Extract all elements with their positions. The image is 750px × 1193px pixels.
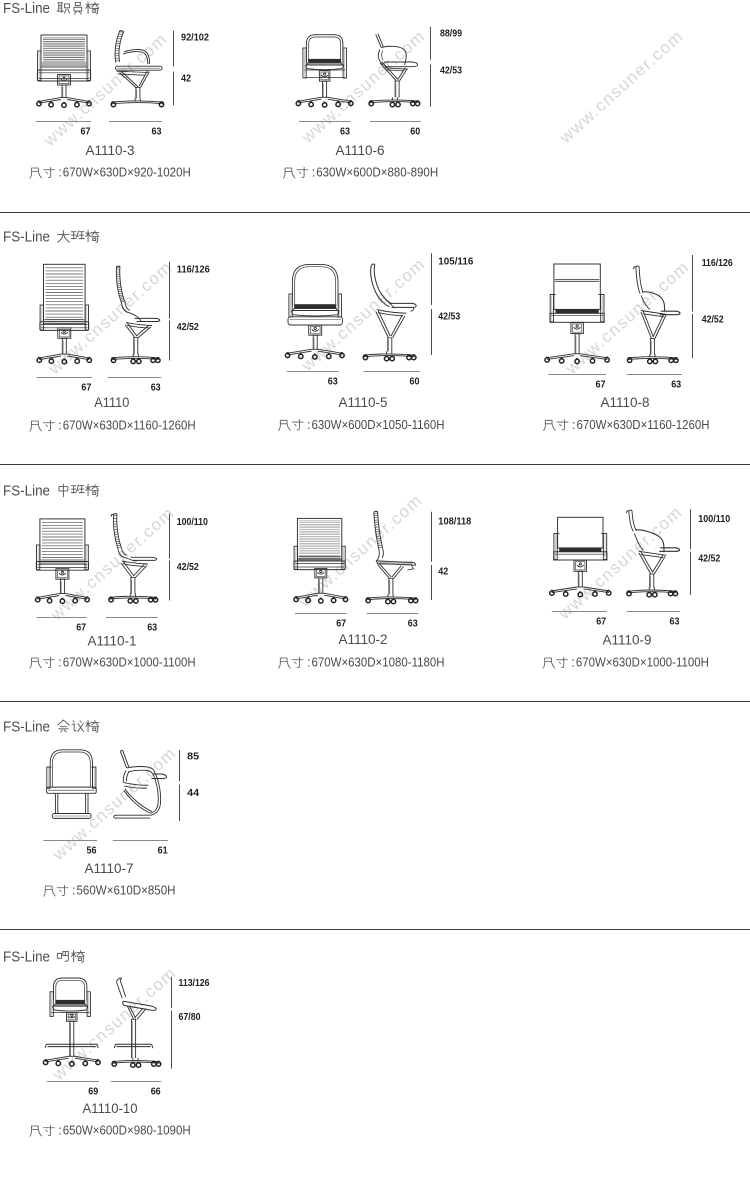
svg-text:42: 42 bbox=[181, 73, 191, 85]
svg-text::: : bbox=[58, 166, 61, 180]
svg-text:66: 66 bbox=[151, 1086, 161, 1098]
svg-text:670W×630D×1160-1260H: 670W×630D×1160-1260H bbox=[63, 419, 196, 433]
svg-text:670W×630D×1000-1100H: 670W×630D×1000-1100H bbox=[63, 656, 196, 670]
svg-text:63: 63 bbox=[152, 126, 162, 138]
svg-text:44: 44 bbox=[187, 787, 199, 799]
svg-text:63: 63 bbox=[408, 618, 418, 630]
svg-text:42/53: 42/53 bbox=[440, 65, 462, 77]
svg-text:670W×630D×1000-1100H: 670W×630D×1000-1100H bbox=[576, 656, 709, 670]
svg-text:105/116: 105/116 bbox=[438, 255, 473, 267]
svg-text:61: 61 bbox=[158, 845, 168, 857]
svg-text:67: 67 bbox=[596, 379, 606, 391]
svg-text:FS-Line: FS-Line bbox=[3, 1, 50, 17]
svg-text:63: 63 bbox=[328, 376, 338, 388]
svg-text:100/110: 100/110 bbox=[698, 513, 730, 525]
svg-text:92/102: 92/102 bbox=[181, 31, 209, 43]
svg-text::: : bbox=[572, 418, 575, 432]
svg-text:67: 67 bbox=[76, 622, 86, 634]
svg-text::: : bbox=[571, 656, 574, 670]
svg-text:A1110-1: A1110-1 bbox=[88, 633, 137, 648]
svg-text:67/80: 67/80 bbox=[179, 1011, 201, 1023]
svg-text:85: 85 bbox=[187, 751, 199, 763]
svg-text:670W×630D×1160-1260H: 670W×630D×1160-1260H bbox=[577, 418, 710, 432]
svg-text::: : bbox=[58, 656, 61, 670]
svg-text:670W×630D×1080-1180H: 670W×630D×1080-1180H bbox=[312, 656, 445, 670]
svg-text:63: 63 bbox=[151, 382, 161, 394]
svg-text:63: 63 bbox=[671, 379, 681, 391]
svg-text:560W×610D×850H: 560W×610D×850H bbox=[77, 884, 176, 898]
svg-text:42/53: 42/53 bbox=[438, 310, 460, 322]
svg-text:650W×600D×980-1090H: 650W×600D×980-1090H bbox=[63, 1124, 191, 1138]
svg-text::: : bbox=[58, 1124, 61, 1138]
svg-text:116/126: 116/126 bbox=[177, 264, 210, 276]
svg-text:108/118: 108/118 bbox=[438, 515, 471, 527]
svg-text::: : bbox=[312, 166, 315, 180]
svg-text:67: 67 bbox=[81, 126, 91, 138]
svg-text:630W×600D×1050-1160H: 630W×600D×1050-1160H bbox=[312, 418, 445, 432]
svg-text:FS-Line: FS-Line bbox=[3, 950, 50, 966]
svg-text:63: 63 bbox=[340, 126, 350, 138]
svg-text:42/52: 42/52 bbox=[702, 314, 724, 326]
svg-text:A1110-5: A1110-5 bbox=[339, 395, 388, 410]
svg-text::: : bbox=[307, 418, 310, 432]
svg-text:FS-Line: FS-Line bbox=[3, 720, 50, 736]
svg-text:69: 69 bbox=[88, 1086, 98, 1098]
svg-text:42: 42 bbox=[438, 565, 448, 577]
svg-text:56: 56 bbox=[87, 845, 97, 857]
svg-text:60: 60 bbox=[410, 376, 420, 388]
svg-text:60: 60 bbox=[410, 126, 420, 138]
svg-text:67: 67 bbox=[596, 616, 606, 628]
svg-text:63: 63 bbox=[670, 616, 680, 628]
svg-text:113/126: 113/126 bbox=[179, 977, 210, 989]
svg-text:A1110-8: A1110-8 bbox=[601, 395, 650, 410]
svg-text:63: 63 bbox=[147, 622, 157, 634]
svg-text::: : bbox=[307, 656, 310, 670]
svg-text:116/126: 116/126 bbox=[702, 257, 733, 269]
svg-text:630W×600D×880-890H: 630W×600D×880-890H bbox=[316, 166, 438, 180]
svg-text:FS-Line: FS-Line bbox=[3, 484, 50, 500]
svg-text:A1110-9: A1110-9 bbox=[603, 632, 652, 647]
svg-text::: : bbox=[58, 419, 61, 433]
svg-text:A1110: A1110 bbox=[94, 395, 129, 410]
svg-text:88/99: 88/99 bbox=[440, 27, 462, 39]
svg-text:42/52: 42/52 bbox=[698, 553, 720, 565]
svg-text::: : bbox=[72, 884, 75, 898]
svg-text:A1110-10: A1110-10 bbox=[83, 1101, 138, 1116]
svg-text:A1110-7: A1110-7 bbox=[85, 861, 134, 876]
svg-text:42/52: 42/52 bbox=[177, 321, 199, 333]
svg-text:67: 67 bbox=[81, 382, 91, 394]
svg-text:100/110: 100/110 bbox=[177, 516, 208, 528]
svg-text:42/52: 42/52 bbox=[177, 561, 199, 573]
svg-text:A1110-2: A1110-2 bbox=[339, 632, 388, 647]
svg-text:67: 67 bbox=[336, 618, 346, 630]
svg-text:A1110-3: A1110-3 bbox=[86, 143, 135, 158]
svg-text:A1110-6: A1110-6 bbox=[336, 143, 385, 158]
svg-text:670W×630D×920-1020H: 670W×630D×920-1020H bbox=[63, 166, 191, 180]
svg-text:FS-Line: FS-Line bbox=[3, 230, 50, 246]
